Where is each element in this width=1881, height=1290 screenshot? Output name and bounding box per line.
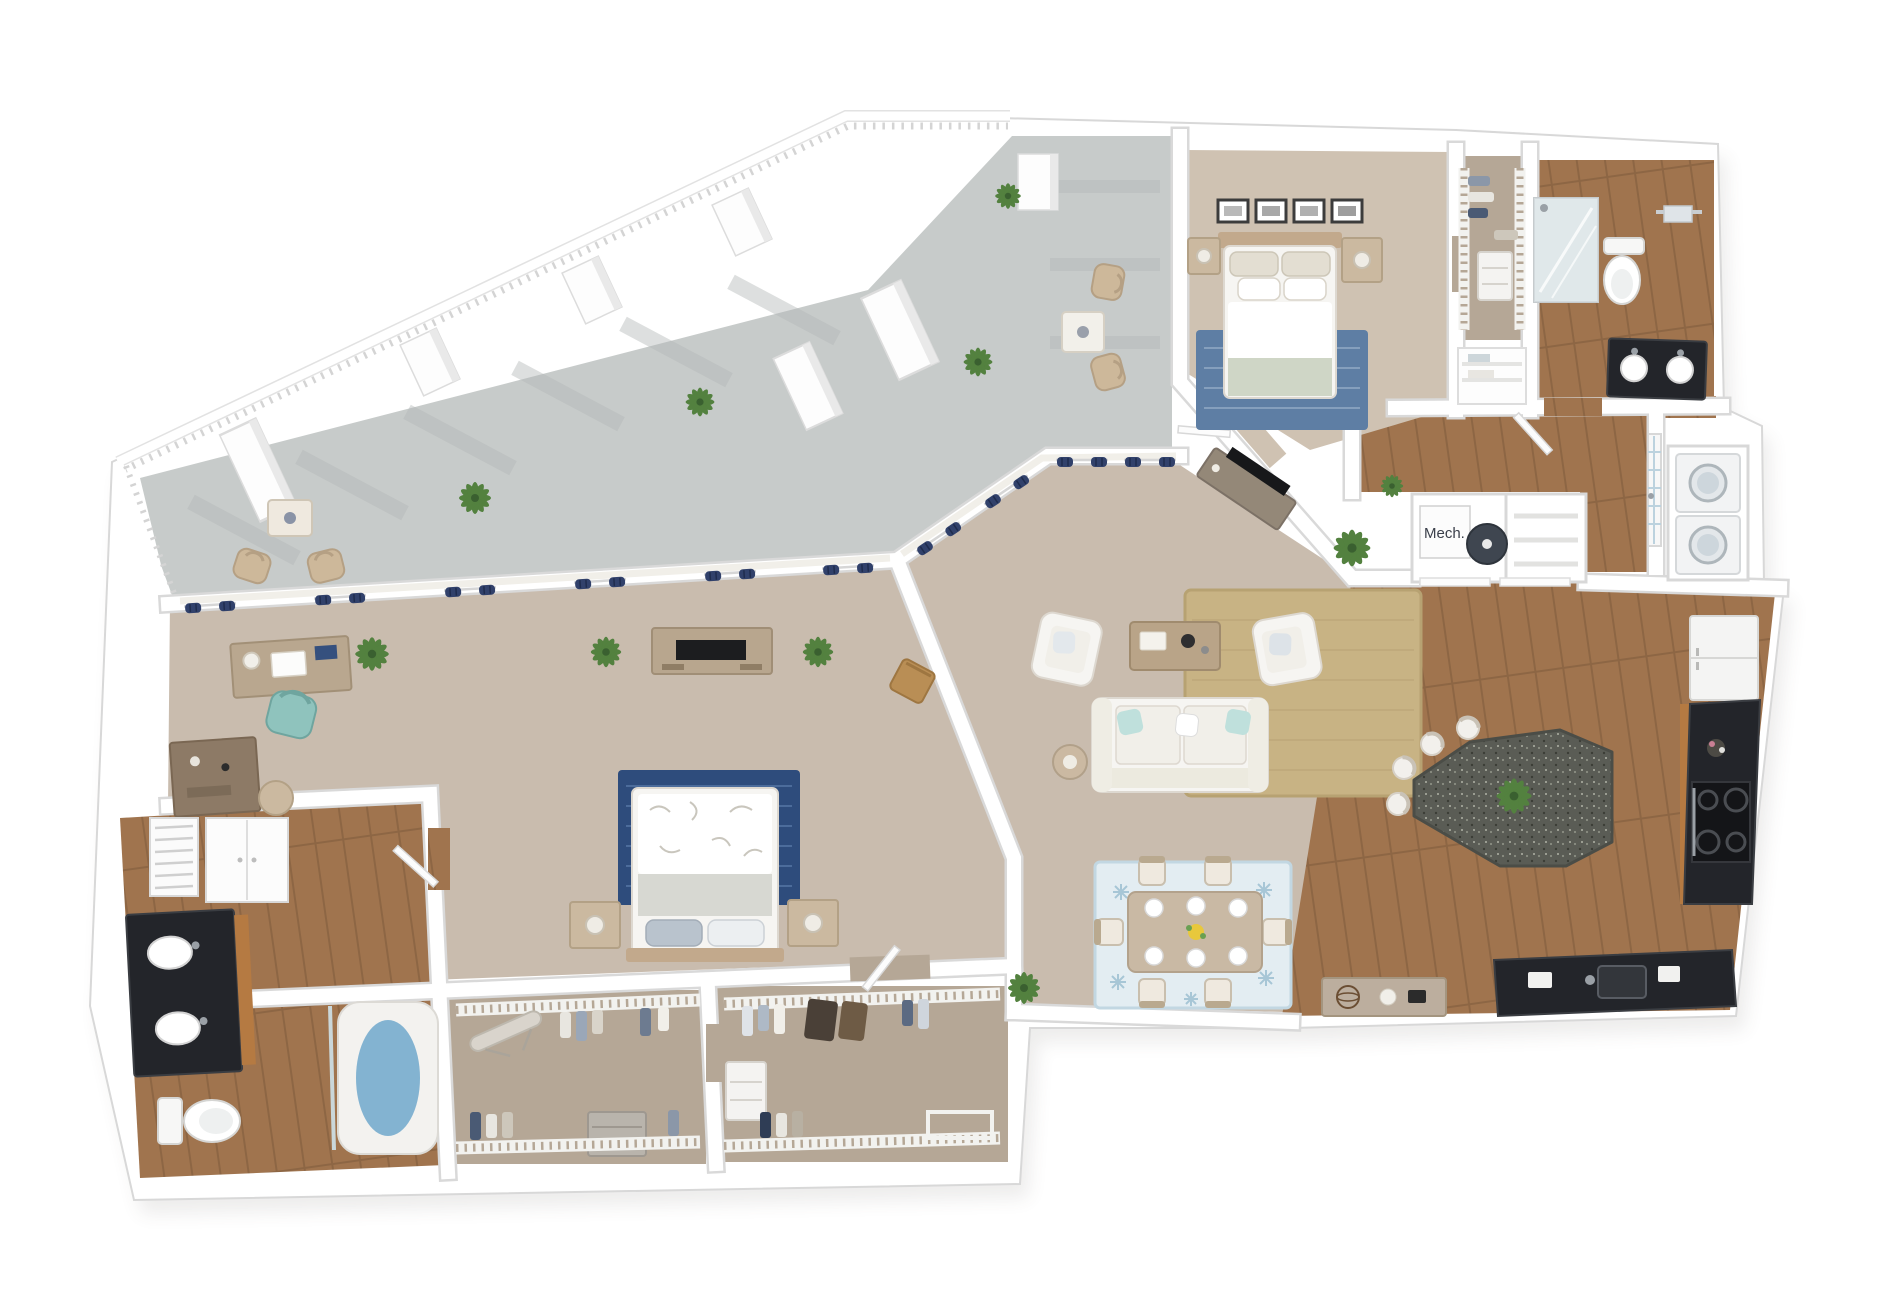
terrace-table-decor — [284, 512, 296, 524]
kitchen-south-counter — [1494, 950, 1736, 1016]
master-tv — [676, 640, 746, 660]
bedroom2-pillow — [1230, 252, 1278, 276]
sofa-pillow — [1224, 708, 1252, 736]
table-lamp — [804, 914, 822, 932]
master-dresser — [170, 737, 261, 817]
floor-lamp — [1053, 745, 1087, 779]
towels — [1468, 370, 1494, 378]
bedroom2-pillow — [1238, 278, 1280, 300]
corner-terrace-chair — [1090, 263, 1125, 302]
master-bed-pillow — [708, 920, 764, 946]
floor-plan-stage: Mech. — [0, 0, 1881, 1290]
vanity-sink — [1667, 356, 1694, 383]
table-lamp — [1197, 249, 1211, 263]
terrace-column — [1018, 154, 1058, 210]
coffee-table — [1130, 622, 1220, 670]
sofa — [1092, 698, 1268, 792]
door-handle — [1648, 493, 1654, 499]
towels — [1468, 354, 1490, 362]
refrigerator — [1690, 616, 1758, 700]
shower-head — [1540, 204, 1548, 212]
sofa-pillow — [1175, 713, 1199, 737]
bathroom2-vanity — [1607, 338, 1707, 399]
desk-lamp — [243, 652, 260, 669]
kitchen-east-counter — [1680, 700, 1760, 904]
kitchen-faucet — [1585, 975, 1595, 985]
master-tv-console — [652, 628, 772, 674]
hanging-clothes — [760, 1111, 803, 1138]
dining-chair — [1139, 979, 1165, 1008]
toilet — [158, 1098, 240, 1144]
armchair — [1030, 610, 1104, 687]
bedroom2-sage-throw — [1228, 358, 1332, 396]
vanity-sink — [1621, 355, 1648, 382]
storage-cabinet — [206, 818, 288, 902]
mechanical-closet: Mech. — [1412, 494, 1586, 586]
dining-chair — [1094, 919, 1123, 945]
master-desk — [230, 636, 351, 698]
armchair — [1251, 611, 1324, 687]
floor-plan-render: Mech. — [0, 0, 1881, 1290]
front-door — [1648, 434, 1661, 546]
table-lamp — [1354, 252, 1370, 268]
kitchen-sink — [1598, 966, 1646, 998]
bathroom2-opening — [1544, 398, 1602, 416]
closet-passage — [706, 1024, 728, 1082]
washer-dryer-closet — [1668, 446, 1748, 580]
side-table — [259, 781, 293, 815]
linen-closet — [1458, 348, 1526, 404]
louvered-utility-closet — [150, 818, 198, 896]
bedroom2-pillow — [1284, 278, 1326, 300]
double-vanity — [126, 909, 256, 1077]
closet2-drawer-unit — [1478, 252, 1512, 300]
dining-chair — [1263, 919, 1292, 945]
corner-terrace-decor — [1077, 326, 1089, 338]
master-headboard — [626, 948, 784, 962]
mech-label: Mech. — [1424, 525, 1465, 542]
soaking-tub — [330, 1002, 438, 1154]
desk-books — [315, 645, 338, 661]
shower — [1534, 198, 1598, 302]
dining-chair — [1139, 856, 1165, 885]
table-lamp — [586, 916, 604, 934]
desk-papers — [271, 651, 307, 677]
dining-chair — [1205, 856, 1231, 885]
vase-decor — [1380, 989, 1396, 1005]
bedroom2-pillow — [1282, 252, 1330, 276]
closet-drawer-unit — [726, 1062, 766, 1120]
master-bed-blanket — [638, 874, 772, 916]
dining-chair — [1205, 979, 1231, 1008]
camera-decor — [1408, 990, 1426, 1003]
console-table — [1322, 978, 1446, 1016]
range-stove — [1692, 782, 1750, 862]
master-bed-pillow — [646, 920, 702, 946]
